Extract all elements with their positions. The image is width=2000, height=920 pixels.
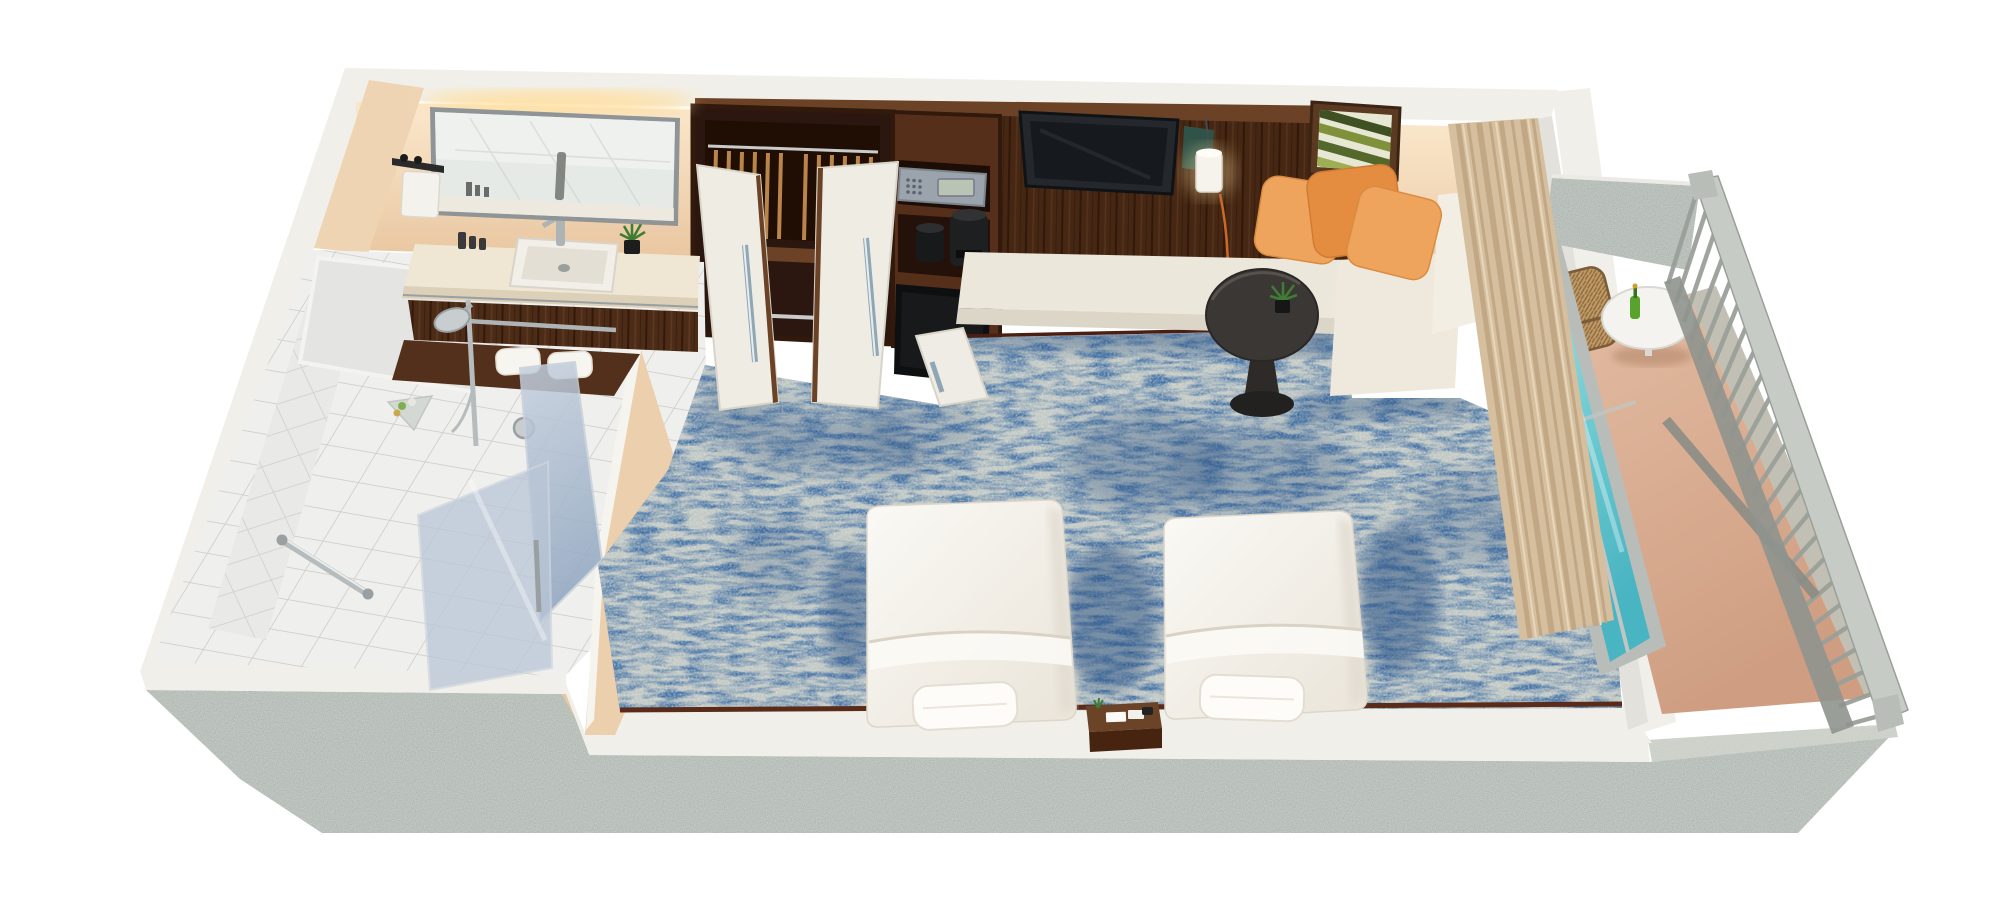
plant-pot — [1275, 300, 1290, 313]
safe — [898, 168, 986, 206]
phone — [1142, 707, 1153, 715]
toiletry-bottle — [408, 398, 416, 406]
glass-door-handle — [536, 540, 539, 612]
wardrobe-door-right — [812, 162, 898, 408]
ice-bucket — [916, 223, 944, 262]
bed-pillow — [1199, 674, 1304, 722]
table-base — [1230, 391, 1294, 417]
vanity-mirror — [423, 90, 693, 226]
safe-display — [938, 179, 974, 196]
sink-drain — [558, 264, 570, 272]
toiletry-bottle — [394, 410, 401, 417]
vanity-sink — [510, 238, 618, 292]
bed-pillow — [912, 681, 1018, 730]
nightstand-front — [1089, 728, 1162, 752]
plant-pot — [624, 240, 640, 254]
pendant-lamp-top — [1196, 149, 1222, 158]
shelf-item — [414, 156, 422, 164]
towel-dispenser — [401, 171, 440, 218]
table-top — [1206, 269, 1318, 361]
floorplan-render — [0, 0, 2000, 920]
nightstand — [1086, 698, 1162, 752]
safe-keypad — [906, 178, 922, 195]
bed-left — [867, 500, 1076, 731]
notepad — [1106, 712, 1126, 723]
shelf-item — [400, 154, 408, 162]
bed-right — [1164, 511, 1367, 722]
notepad — [1128, 710, 1144, 719]
pendant-lamp — [1196, 152, 1222, 192]
tv — [1020, 112, 1178, 194]
bottle-foil — [1633, 284, 1638, 289]
floorplan-svg — [0, 0, 2000, 920]
toiletry-bottle — [398, 402, 406, 410]
